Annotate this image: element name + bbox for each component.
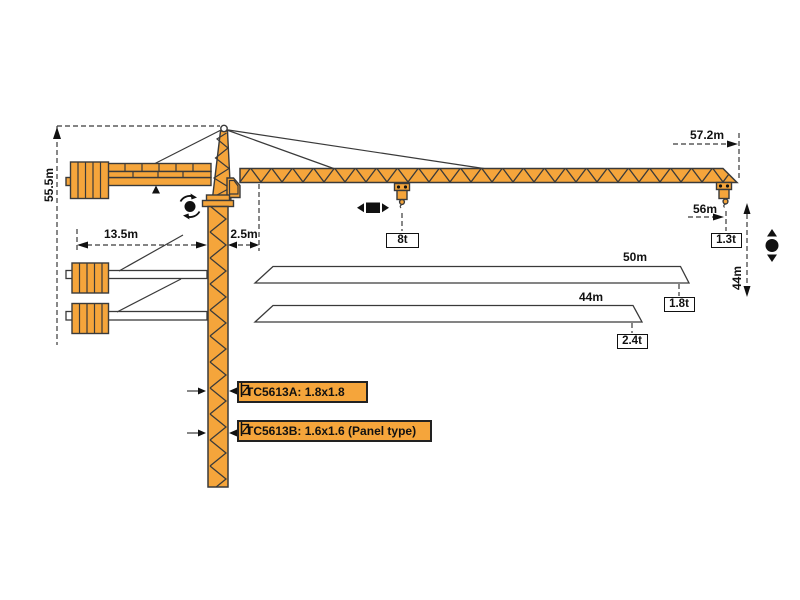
model-b-box: TC5613B: 1.6x1.6 (Panel type) [237, 420, 432, 442]
jib-foot-offset-label: 2.5m [219, 227, 269, 241]
model-a-box: TC5613A: 1.8x1.8 [237, 381, 368, 403]
tip-load-44m-box: 2.4t [617, 334, 648, 349]
hoist-icon [766, 229, 779, 262]
jib-44m-label: 44m [567, 290, 615, 304]
tie-leader-2 [117, 279, 181, 312]
tip-load-50m-box: 1.8t [664, 297, 695, 312]
main-jib [240, 169, 737, 183]
model-b-label: TC5613B: 1.6x1.6 (Panel type) [246, 424, 416, 438]
arrowhead [53, 127, 61, 139]
counterjib-length-label: 13.5m [93, 227, 149, 241]
apex-pulley [221, 125, 227, 131]
jib-50m-label: 50m [611, 250, 659, 264]
hook-mid [400, 200, 405, 205]
trolley-travel-icon [357, 203, 389, 214]
counter-jib [66, 162, 211, 199]
tower-mast [208, 207, 228, 488]
hook-radius-label: 56m [685, 202, 725, 216]
jib-option-50m-bar [255, 267, 689, 284]
rotation-icon [181, 194, 200, 220]
model-a-label: TC5613A: 1.8x1.8 [246, 385, 345, 399]
mast-section-icon [239, 383, 250, 397]
mast-section-icon [239, 422, 250, 436]
counterweight-block [71, 162, 109, 199]
tower-height-label: 55.5m [42, 160, 56, 210]
mid-span-load-box: 8t [386, 233, 419, 248]
crane-diagram-canvas: 55.5m 13.5m 2.5m 57.2m 56m 44m 50m 44m 8… [0, 0, 800, 600]
max-radius-label: 57.2m [680, 128, 734, 142]
trolley-mid [395, 184, 410, 209]
jib-option-44m-bar [255, 306, 642, 323]
slewing-unit [203, 195, 234, 207]
attachment-marker [152, 186, 160, 194]
tip-load-56m-box: 1.3t [711, 233, 742, 248]
hoist-height-label: 44m [730, 256, 744, 300]
